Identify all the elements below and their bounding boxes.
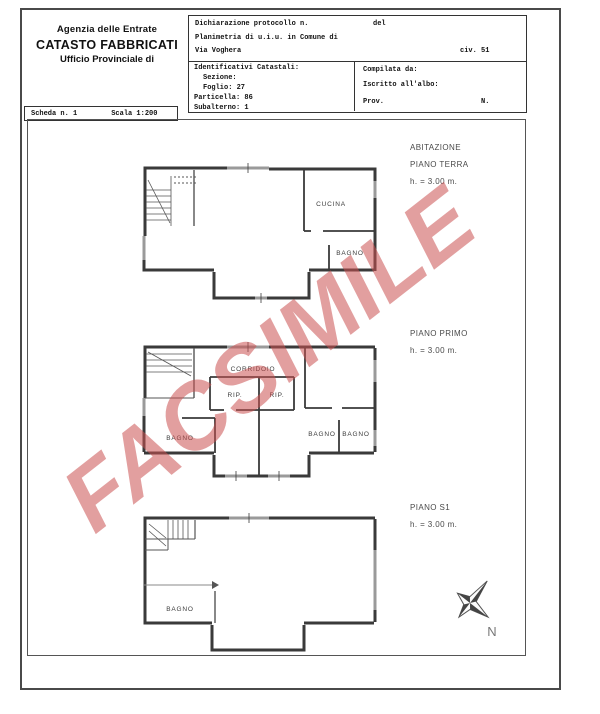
agency-name: Agenzia delle Entrate xyxy=(32,24,182,35)
terra-stairs-icon xyxy=(146,170,196,226)
s1-section-line xyxy=(144,581,219,623)
compass-rose-icon: N xyxy=(446,571,505,639)
compiler-section: Compilata da: Iscritto all'albo: Prov. N… xyxy=(356,62,526,111)
s1-outer-walls xyxy=(145,518,375,650)
foglio-field: Foglio: 27 xyxy=(203,84,354,92)
catastal-ids-title: Identificativi Catastali: xyxy=(194,64,354,72)
room-label-cucina: CUCINA xyxy=(316,201,346,208)
n-label: N. xyxy=(481,98,489,106)
planimetria-row: Planimetria di u.i.u. in Comune di xyxy=(195,34,520,42)
north-label: N xyxy=(487,624,496,639)
street-name: Via Voghera xyxy=(195,47,241,55)
declaration-box: Dichiarazione protocollo n. del Planimet… xyxy=(188,15,527,113)
protocol-row: Dichiarazione protocollo n. del xyxy=(195,20,520,28)
catasto-title: CATASTO FABBRICATI xyxy=(32,38,182,52)
particella-field: Particella: 86 xyxy=(194,94,354,102)
subalterno-field: Subalterno: 1 xyxy=(194,104,354,112)
floor-title-s1: PIANO S1 h. = 3.00 m. xyxy=(410,499,457,533)
s1-stairs-icon xyxy=(145,520,195,550)
catastal-ids-section: Identificativi Catastali: Sezione: Fogli… xyxy=(189,62,355,111)
iscritto-label: Iscritto all'albo: xyxy=(363,81,439,89)
street-row: Via Voghera civ. 51 xyxy=(195,47,520,55)
planimetria-label: Planimetria di u.i.u. in Comune di xyxy=(195,34,338,42)
provincial-office-label: Ufficio Provinciale di xyxy=(32,54,182,65)
floor-title-primo: PIANO PRIMO h. = 3.00 m. xyxy=(410,325,468,359)
room-label-bagno-primo-mid: BAGNO xyxy=(308,431,335,438)
cadastral-sheet: Agenzia delle Entrate CATASTO FABBRICATI… xyxy=(20,8,561,690)
abitazione-label: ABITAZIONE xyxy=(410,139,469,156)
piano-primo-label: PIANO PRIMO xyxy=(410,325,468,342)
piano-terra-label: PIANO TERRA xyxy=(410,156,469,173)
civic-number: civ. 51 xyxy=(460,47,489,55)
terra-window-ticks xyxy=(248,163,261,303)
del-label: del xyxy=(373,20,386,28)
s1-windows xyxy=(229,518,375,610)
compilata-label: Compilata da: xyxy=(363,66,418,74)
agency-header: Agenzia delle Entrate CATASTO FABBRICATI… xyxy=(32,24,182,65)
document-page: Agenzia delle Entrate CATASTO FABBRICATI… xyxy=(0,0,600,714)
scale-label: Scala 1:200 xyxy=(111,110,157,118)
plan-piano-s1: BAGNO xyxy=(144,513,375,650)
sheet-number: Scheda n. 1 xyxy=(31,110,77,118)
room-label-bagno-primo-right: BAGNO xyxy=(342,431,369,438)
room-label-bagno-s1: BAGNO xyxy=(166,606,193,613)
piano-s1-height: h. = 3.00 m. xyxy=(410,516,457,533)
drawing-area: FACSIMILE ABITAZIONE PIANO TERRA h. = 3.… xyxy=(27,119,526,656)
piano-primo-height: h. = 3.00 m. xyxy=(410,342,468,359)
protocol-label: Dichiarazione protocollo n. xyxy=(195,20,308,28)
piano-s1-label: PIANO S1 xyxy=(410,499,457,516)
declaration-top-section: Dichiarazione protocollo n. del Planimet… xyxy=(189,16,526,62)
prov-label: Prov. xyxy=(363,98,384,106)
sezione-field: Sezione: xyxy=(203,74,354,82)
